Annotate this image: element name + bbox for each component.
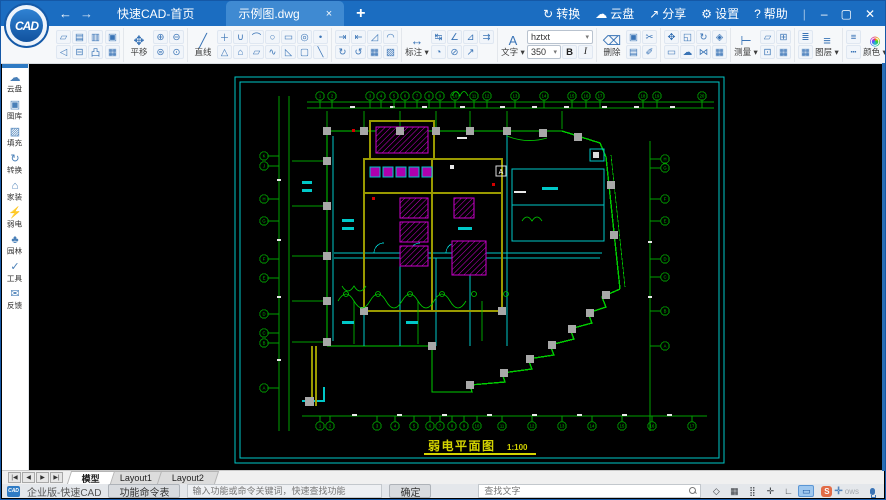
watermark-cross-icon: ✛ [834,486,842,497]
ortho-mode-icon[interactable]: ∟ [780,485,796,497]
dim-radius-icon[interactable]: ◔ [431,45,446,59]
svg-text:4: 4 [394,424,397,429]
minimize-button[interactable]: – [821,7,828,21]
svg-text:J: J [263,164,265,169]
icon-row: ◁⊟凸 [56,45,103,59]
svg-text:3: 3 [369,94,372,99]
pan-icon: ✥ [134,33,145,48]
icon-row: △⌂▱∿◺▢╲ [217,45,328,59]
toolbar-group-draw: ╱直线＋∪⌒○▭◎•△⌂▱∿◺▢╲ [188,28,332,62]
cloud-drive-icon: ☁ [9,72,20,85]
sidebar-item-convert[interactable]: ↻转换 [6,153,23,175]
svg-text:G: G [262,219,265,224]
svg-text:12: 12 [530,424,535,429]
svg-text:11: 11 [500,424,505,429]
svg-text:B: B [263,341,266,346]
svg-text:17: 17 [598,94,603,99]
measure-label: 测量 ▾ [734,48,758,57]
sidebar-item-label: 工具 [7,274,22,282]
line-icon: ╱ [199,33,207,48]
icon-rows: ≡┅ [846,30,861,59]
chamfer-icon[interactable]: ◠ [383,30,398,44]
sidebar-item-home-design[interactable]: ⌂家装 [6,180,23,202]
toolbar-group-text: A文字 ▾hztxt▾350▾BI [498,28,597,62]
format-brush-icon[interactable]: ✐ [642,45,657,59]
icon-row: ▱▤▥ [56,30,103,44]
measure-button[interactable]: ⊢测量 ▾ [734,33,758,57]
extend-icon[interactable]: ⇤ [351,30,366,44]
bold-button[interactable]: B [562,45,577,59]
move-icon[interactable]: ✥ [664,30,679,44]
icon-rows: ▣▦ [105,30,120,59]
chevron-down-icon: ▾ [553,48,557,56]
titlebar-menu: ↻转换☁云盘↗分享⚙设置?帮助 | –▢✕ [543,5,885,22]
table-icon[interactable]: ▦ [776,45,791,59]
cad-drawing[interactable]: 1234567891011121314151617181920123456789… [28,63,885,471]
toolbar-group-measure: ⊢测量 ▾▱⊞⊡▦ [731,28,795,62]
polygon-icon[interactable]: ⌂ [233,45,248,59]
tab-close-icon[interactable]: × [326,8,332,20]
hatch-fill-icon: ▨ [10,126,20,139]
svg-text:9: 9 [463,424,466,429]
svg-text:2: 2 [331,94,334,99]
icon-row: ⊕⊖ [153,30,184,44]
status-bar: CAD 企业版-快速CAD 功能命令表 确定 ◇▦⣿✛∟▭ S ✛ ows [2,484,884,498]
toolbar-group-view: ✥平移⊕⊖⊜⊙ [124,28,188,62]
menu-share-label: 分享 [662,5,686,22]
menu-cloud[interactable]: ☁云盘 [595,5,634,22]
open-file-icon[interactable]: ▱ [56,30,71,44]
sidebar-item-label: 家装 [7,193,22,201]
hatch-icon[interactable]: ▦ [367,45,382,59]
left-sidebar: ☁云盘▣图库▨填充↻转换⌂家装⚡弱电♣园林✓工具✉反馈 [2,63,29,471]
vertical-scrollbar[interactable] [882,63,885,471]
icon-row: ⇥⇤◿◠ [335,30,398,44]
icon-row: ◔⊘↗ [431,45,494,59]
sidebar-item-label: 转换 [7,166,22,174]
pan-label: 平移 [130,48,147,57]
icon-rows: ＋∪⌒○▭◎•△⌂▱∿◺▢╲ [217,30,328,59]
text-settings: hztxt▾350▾BI [527,30,593,59]
round-rect-icon[interactable]: ▢ [297,45,312,59]
status-toggle-icons: ◇▦⣿✛∟▭ [708,485,814,497]
svg-text:3: 3 [376,424,379,429]
snap-mode-icon[interactable]: ✛ [762,485,778,497]
svg-text:1: 1 [319,424,322,429]
main-toolbar: ▱▤▥◁⊟凸▣▦✥平移⊕⊖⊜⊙╱直线＋∪⌒○▭◎•△⌂▱∿◺▢╲⇥⇤◿◠↻↺▦▧… [1,26,885,64]
copy-icon[interactable]: ▣ [626,30,641,44]
pan-button[interactable]: ✥平移 [127,33,151,57]
edition-label: 企业版-快速CAD [27,484,101,499]
last-sheet-button[interactable]: ▶| [50,472,63,483]
tab-document[interactable]: 示例图.dwg × [226,1,344,26]
zoom-in-icon[interactable]: ⊕ [153,30,168,44]
icon-row: ＋∪⌒○▭◎• [217,30,328,44]
svg-text:4: 4 [380,94,383,99]
icon-rows: ⇥⇤◿◠↻↺▦▧ [335,30,398,59]
icon-row: ≣ [798,30,813,44]
tab-home[interactable]: 快速CAD-首页 [103,5,208,22]
svg-text:1: 1 [319,94,322,99]
svg-text:16: 16 [584,94,589,99]
cut-icon[interactable]: ✂ [642,30,657,44]
wedge-icon[interactable]: ◺ [281,45,296,59]
sidebar-item-landscape[interactable]: ♣园林 [6,234,23,256]
dim-leader-icon[interactable]: ↗ [463,45,478,59]
insert-image-icon[interactable]: ▦ [105,45,120,59]
toolbar-group-dimension: ↔标注 ▾↹∠⊿⇉◔⊘↗ [402,28,498,62]
svg-text:5: 5 [413,424,416,429]
rotate-icon[interactable]: ↻ [696,30,711,44]
rotate-ccw-icon[interactable]: ↺ [351,45,366,59]
watermark-badge: S [821,486,832,497]
svg-text:6: 6 [404,94,407,99]
icon-row: ▦ [798,45,813,59]
palette-icon: ◉ [869,33,880,48]
menu-share[interactable]: ↗分享 [649,5,686,22]
svg-text:5: 5 [393,94,396,99]
layer-grid-icon[interactable]: ▦ [798,45,813,59]
icon-row: ↻↺▦▧ [335,45,398,59]
print-icon[interactable]: ⊟ [72,45,87,59]
clip-icon[interactable]: ▭ [664,45,679,59]
tab-document-label: 示例图.dwg [238,5,299,22]
sheet-tab-label: Layout1 [120,473,152,483]
find-text-input[interactable] [482,485,686,497]
linetype-icon[interactable]: ┅ [846,45,861,59]
new-tab-button[interactable]: + [356,5,365,23]
arc-icon[interactable]: ⌒ [249,30,264,44]
status-logo: CAD [7,486,20,497]
rotate-cw-icon[interactable]: ↻ [335,45,350,59]
export-pdf-icon[interactable]: 凸 [88,45,103,59]
sidebar-item-gallery[interactable]: ▣图库 [6,99,23,121]
menu-settings-label: 设置 [715,5,739,22]
sheet-tabs: 模型Layout1Layout2 [69,471,211,484]
icon-row: ≡ [846,30,861,44]
svg-text:C: C [663,275,666,280]
polyline-icon[interactable]: ∪ [233,30,248,44]
dimension-button[interactable]: ↔标注 ▾ [405,33,429,57]
svg-text:7: 7 [416,94,419,99]
svg-text:8: 8 [451,424,454,429]
svg-text:10: 10 [475,424,480,429]
svg-text:18: 18 [641,94,646,99]
maximize-button[interactable]: ▢ [841,7,852,21]
first-sheet-button[interactable]: |◀ [8,472,21,483]
measure-area-icon[interactable]: ▱ [760,30,775,44]
share-icon: ↗ [649,7,659,21]
sidebar-item-label: 园林 [7,247,22,255]
svg-text:7: 7 [439,424,442,429]
low-voltage-icon: ⚡ [8,207,22,220]
chevron-down-icon: ▾ [585,33,589,41]
command-search-input[interactable] [187,484,382,498]
svg-text:H: H [663,157,666,162]
fillet-icon[interactable]: ◿ [367,30,382,44]
sidebar-item-label: 反馈 [7,301,22,309]
export-image-icon[interactable]: ▣ [105,30,120,44]
svg-text:D: D [262,312,265,317]
layer-stack-icon[interactable]: ≣ [798,30,813,44]
rectangle-icon[interactable]: ▭ [281,30,296,44]
menu-help-label: 帮助 [764,5,788,22]
mirror-icon[interactable]: ⋈ [696,45,711,59]
titlebar-separator: | [803,7,806,21]
svg-text:E: E [263,276,266,281]
svg-text:F: F [263,257,266,262]
help-icon: ? [754,7,761,21]
svg-text:10: 10 [453,94,458,99]
convert-icon: ↻ [543,7,553,21]
svg-text:E: E [664,219,667,224]
icon-rows: ▣✂▤✐ [626,30,657,59]
icon-rows: ▱⊞⊡▦ [760,30,791,59]
menu-help[interactable]: ?帮助 [754,5,788,22]
settings-icon: ⚙ [701,7,712,21]
sheet-tab-bar: |◀◀▶▶| 模型Layout1Layout2 [2,470,884,484]
zoom-extents-icon[interactable]: ⊜ [153,45,168,59]
point-icon[interactable]: • [313,30,328,44]
text-icon: A [509,33,518,48]
menu-items: ↻转换☁云盘↗分享⚙设置?帮助 [543,5,788,22]
array-icon[interactable]: ▦ [712,45,727,59]
svg-text:B: B [664,309,667,314]
svg-text:15: 15 [570,94,575,99]
svg-text:A: A [664,344,667,349]
nav-arrows: ← → [59,6,93,21]
3d-orbit-icon[interactable]: ◈ [712,30,727,44]
block-icon[interactable]: ▧ [383,45,398,59]
toolbar-group-color: ≡┅◉颜色 ▾✐☁ [843,28,885,62]
icon-rows: ↹∠⊿⇉◔⊘↗ [431,30,494,59]
toolbar-group-modify: ⇥⇤◿◠↻↺▦▧ [332,28,402,62]
icon-row: ↹∠⊿⇉ [431,30,494,44]
palette-label: 颜色 ▾ [863,48,885,57]
microphone-icon[interactable] [870,488,875,495]
spline-icon[interactable]: ∿ [265,45,280,59]
window-buttons: –▢✕ [821,7,875,21]
layers-label: 图层 ▾ [815,48,839,57]
command-list-button[interactable]: 功能命令表 [108,484,180,498]
text-label: 文字 ▾ [501,48,525,57]
screen-display-icon[interactable]: ▭ [798,485,814,497]
size-row: 350▾BI [527,45,593,59]
icon-row: ▤✐ [626,45,657,59]
erase-icon: ⌫ [603,33,621,48]
ray-icon[interactable]: ╲ [313,45,328,59]
sidebar-item-feedback[interactable]: ✉反馈 [6,288,23,310]
drawing-title: 弱电平面图 [428,438,496,453]
icon-row: ✥◱↻◈ [664,30,727,44]
tools-icon: ✓ [10,261,19,274]
dimension-label: 标注 ▾ [405,48,429,57]
svg-text:C: C [262,331,265,336]
icon-row: ▦ [105,45,120,59]
ok-button[interactable]: 确定 [389,484,431,498]
icon-rows: ▱▤▥◁⊟凸 [56,30,103,59]
icon-row: ▣✂ [626,30,657,44]
svg-text:6: 6 [429,424,432,429]
sheet-tab-model[interactable]: 模型 [67,471,115,484]
svg-text:D: D [663,257,666,262]
back-icon[interactable]: ← [59,6,72,21]
zoom-window-icon[interactable]: ⊙ [169,45,184,59]
font-select-value: hztxt [531,32,550,42]
find-text-box [478,484,701,498]
dot-grid-icon[interactable]: ⣿ [744,485,760,497]
cloud-upload-icon[interactable]: ☁ [680,45,695,59]
toolbar-group-edit: ⌫删除▣✂▤✐ [597,28,661,62]
line-label: 直线 [194,48,211,57]
svg-text:19: 19 [655,94,660,99]
svg-text:17: 17 [690,424,695,429]
prev-sheet-button[interactable]: ◀ [22,472,35,483]
sidebar-item-label: 弱电 [7,220,22,228]
triangle-icon[interactable]: △ [217,45,232,59]
svg-text:F: F [664,197,667,202]
app-logo[interactable]: CAD [4,3,49,48]
text-size-select[interactable]: 350▾ [527,45,561,59]
svg-text:14: 14 [542,94,547,99]
font-row: hztxt▾ [527,30,593,44]
dim-aligned-icon[interactable]: ⊿ [463,30,478,44]
save-file-icon[interactable]: ▤ [72,30,87,44]
font-select[interactable]: hztxt▾ [527,30,593,44]
undo-icon[interactable]: ◁ [56,45,71,59]
sidebar-item-cloud-drive[interactable]: ☁云盘 [6,72,23,94]
sidebar-item-hatch-fill[interactable]: ▨填充 [6,126,23,148]
convert-icon: ↻ [10,153,19,166]
svg-text:13: 13 [560,424,565,429]
app-window: CAD ← → 快速CAD-首页 示例图.dwg × + ↻转换☁云盘↗分享⚙设… [0,0,886,500]
sidebar-item-low-voltage[interactable]: ⚡弱电 [6,207,23,229]
sheet-nav-buttons: |◀◀▶▶| [8,471,63,484]
close-button[interactable]: ✕ [865,7,875,21]
icon-row: ▣ [105,30,120,44]
erase-button[interactable]: ⌫删除 [600,33,624,57]
text-size-value: 350 [531,47,546,57]
icon-rows: ≣▦ [798,30,813,59]
dimension-icon: ↔ [411,33,424,48]
menu-settings[interactable]: ⚙设置 [701,5,739,22]
trim-icon[interactable]: ⇥ [335,30,350,44]
menu-cloud-label: 云盘 [610,5,634,22]
line-button[interactable]: ╱直线 [191,33,215,57]
search-icon[interactable] [689,487,697,495]
sidebar-items: ☁云盘▣图库▨填充↻转换⌂家装⚡弱电♣园林✓工具✉反馈 [6,72,23,315]
room-label-marks [302,165,558,324]
icon-row: ▱⊞ [760,30,791,44]
forward-icon[interactable]: → [80,6,93,21]
svg-text:14: 14 [590,424,595,429]
menu-convert-label: 转换 [556,5,580,22]
svg-text:12: 12 [485,94,490,99]
drawing-area[interactable]: 1234567891011121314151617181920123456789… [28,63,885,471]
measure-icon: ⊢ [740,33,751,48]
landscape-icon: ♣ [11,234,18,247]
zoom-out-icon[interactable]: ⊖ [169,30,184,44]
gallery-icon: ▣ [10,99,20,112]
icon-row: ⊡▦ [760,45,791,59]
svg-text:G: G [663,166,666,171]
lineweight-icon[interactable]: ≡ [846,30,861,44]
svg-text:9: 9 [439,94,442,99]
svg-text:13: 13 [513,94,518,99]
svg-text:A: A [263,386,266,391]
grid-axis-lines [279,96,714,431]
svg-text:15: 15 [620,424,625,429]
sheet-tab-layout2[interactable]: Layout2 [157,471,219,484]
text-button[interactable]: A文字 ▾ [501,33,525,57]
room-marker: A [496,166,506,176]
svg-text:20: 20 [700,94,705,99]
svg-text:8: 8 [428,94,431,99]
toolbar-group-transform: ✥◱↻◈▭☁⋈▦ [661,28,731,62]
icon-row: ┅ [846,45,861,59]
toolbar-group-layer: ≣▦≡图层 ▾ [795,28,843,62]
svg-text:16: 16 [650,424,655,429]
layers-button[interactable]: ≡图层 ▾ [815,33,839,57]
dim-angular-icon[interactable]: ∠ [447,30,462,44]
erase-label: 删除 [603,48,620,57]
sidebar-item-label: 填充 [7,139,22,147]
coordinate-icon[interactable]: ⊡ [760,45,775,59]
scale-icon[interactable]: ◱ [680,30,695,44]
icon-row: ⊜⊙ [153,45,184,59]
object-snap-3d-icon[interactable]: ◇ [708,485,724,497]
toolbar-group-file: ▱▤▥◁⊟凸▣▦ [53,28,124,62]
home-design-icon: ⌂ [12,180,19,193]
save-as-icon[interactable]: ▥ [88,30,103,44]
sidebar-item-label: 图库 [7,112,22,120]
menu-convert[interactable]: ↻转换 [543,5,580,22]
icon-row: ▭☁⋈▦ [664,45,727,59]
next-sheet-button[interactable]: ▶ [36,472,49,483]
room-marker-label: A [499,169,504,176]
sidebar-item-tools[interactable]: ✓工具 [6,261,23,283]
ellipse-icon[interactable]: ◎ [297,30,312,44]
dim-linear-icon[interactable]: ↹ [431,30,446,44]
cloud-icon: ☁ [595,7,607,21]
icon-rows: ✥◱↻◈▭☁⋈▦ [664,30,727,59]
xline-icon[interactable]: ＋ [217,30,232,44]
drawing-title-block: 弱电平面图 1:100 [424,438,536,454]
app-logo-text: CAD [10,9,43,42]
sheet-tab-label: Layout2 [172,473,204,483]
icon-rows: ⊕⊖⊜⊙ [153,30,184,59]
svg-text:2: 2 [329,424,332,429]
svg-text:K: K [263,154,266,159]
watermark-text: ows [845,487,859,496]
sidebar-item-label: 云盘 [7,85,22,93]
feedback-icon: ✉ [10,288,19,301]
svg-text:11: 11 [472,94,477,99]
paste-icon[interactable]: ▤ [626,45,641,59]
circle-icon[interactable]: ○ [265,30,280,44]
svg-text:H: H [262,197,265,202]
parallelogram-icon[interactable]: ▱ [249,45,264,59]
count-icon[interactable]: ⊞ [776,30,791,44]
dim-continue-icon[interactable]: ⇉ [479,30,494,44]
grid-display-icon[interactable]: ▦ [726,485,742,497]
layers-icon: ≡ [823,33,831,48]
italic-button[interactable]: I [578,45,593,59]
title-bar: CAD ← → 快速CAD-首页 示例图.dwg × + ↻转换☁云盘↗分享⚙设… [1,1,885,26]
drawing-scale: 1:100 [507,443,528,452]
palette-button[interactable]: ◉颜色 ▾ [863,33,885,57]
dim-diameter-icon[interactable]: ⊘ [447,45,462,59]
